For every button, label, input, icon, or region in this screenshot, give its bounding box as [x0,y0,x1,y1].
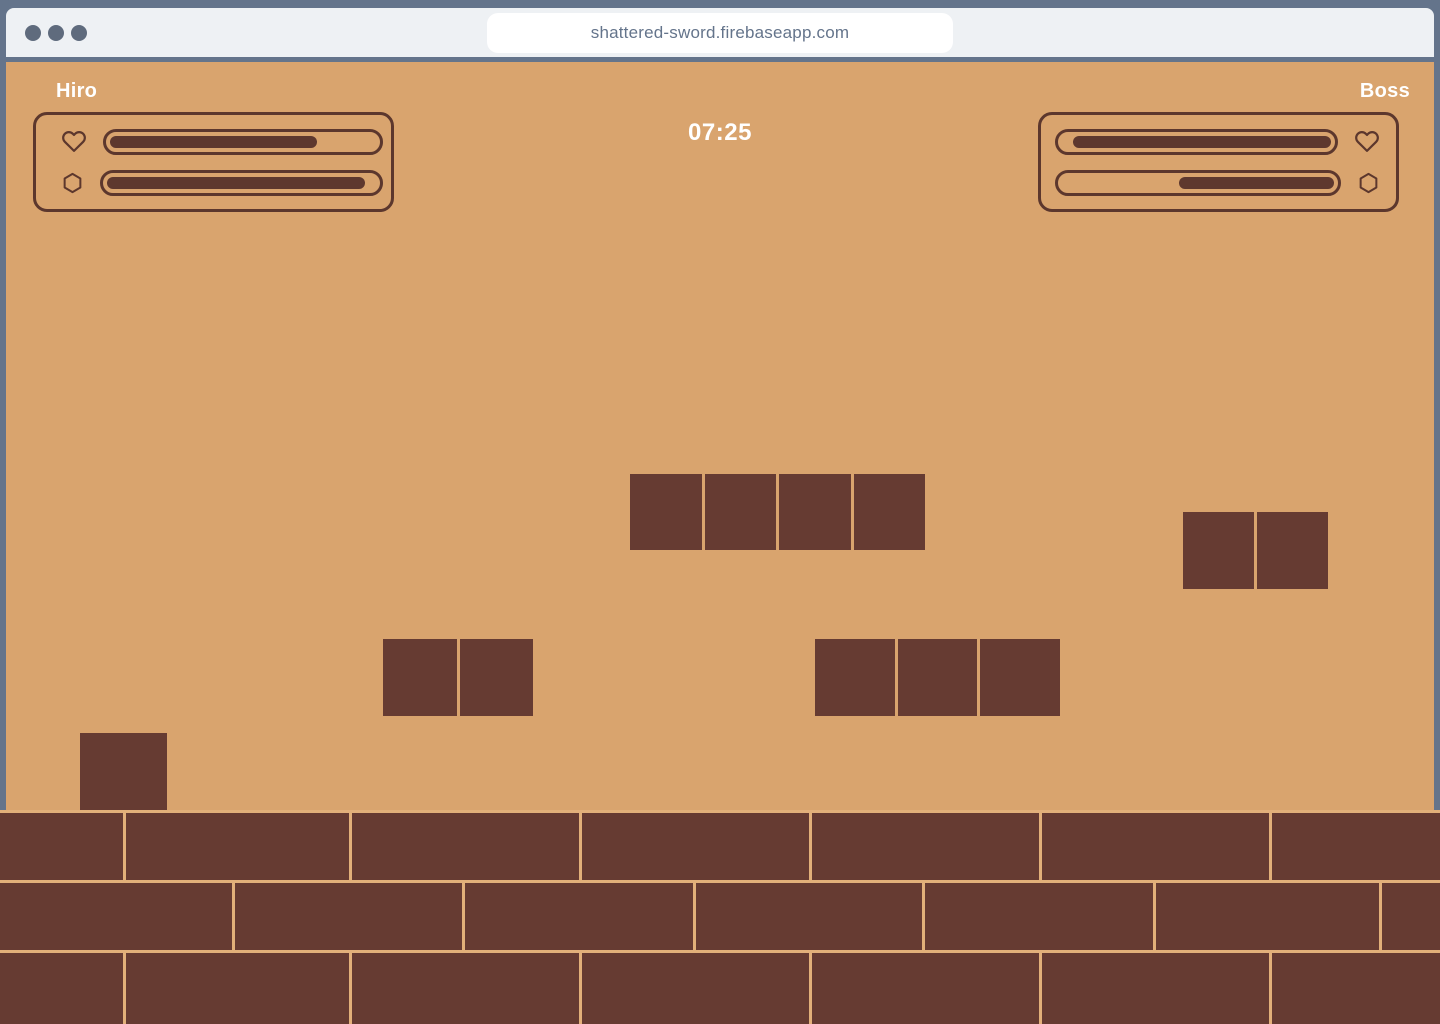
brick-gap [1153,883,1156,950]
platform [1183,512,1328,589]
floor [0,810,1440,1024]
brick-gap [809,813,812,880]
platform-tile [383,639,457,716]
platform-tile [630,474,702,550]
brick-gap [693,883,696,950]
window-close-button[interactable] [25,25,41,41]
brick-gap [809,953,812,1024]
platform-tile [980,639,1060,716]
url-text: shattered-sword.firebaseapp.com [591,23,850,43]
brick-gap [349,813,352,880]
player-name-boss: Boss [1360,81,1410,101]
platform-tile [705,474,777,550]
platform-tile [779,474,851,550]
hiro-health-fill [110,136,317,148]
platform [383,639,533,716]
brick-gap [1039,953,1042,1024]
boss-health-bar [1055,129,1338,155]
hiro-health-bar [103,129,383,155]
brick-row [0,883,1440,950]
platform-tile [80,733,167,810]
brick-gap [1269,953,1272,1024]
brick-gap [462,883,465,950]
brick-gap [349,953,352,1024]
brick-gap [1269,813,1272,880]
browser-titlebar: shattered-sword.firebaseapp.com [6,8,1434,57]
hiro-energy-row [61,170,383,196]
platform [80,733,167,810]
platform [815,639,1060,716]
platform-tile [1257,512,1328,589]
platform-tile [460,639,534,716]
url-bar[interactable]: shattered-sword.firebaseapp.com [487,13,953,53]
hexagon-icon [1357,171,1380,195]
traffic-lights [25,25,87,41]
boss-status-panel [1038,112,1399,212]
boss-energy-bar [1055,170,1341,196]
hexagon-icon [61,171,84,195]
boss-energy-fill [1179,177,1334,189]
boss-health-row [1055,129,1380,155]
brick-row [0,953,1440,1024]
platform-tile [898,639,978,716]
player-name-hiro: Hiro [56,81,97,101]
heart-icon [1354,129,1380,154]
brick-gap [579,813,582,880]
hiro-energy-bar [100,170,383,196]
brick-gap [232,883,235,950]
window-maximize-button[interactable] [71,25,87,41]
platform-tile [815,639,895,716]
hiro-health-row [61,129,383,155]
platform-tile [854,474,926,550]
brick-gap [1039,813,1042,880]
brick-gap [123,813,126,880]
brick-gap [922,883,925,950]
window-minimize-button[interactable] [48,25,64,41]
heart-icon [61,129,87,154]
hiro-energy-fill [107,177,365,189]
hiro-status-panel [33,112,394,212]
platform [630,474,925,550]
boss-health-fill [1073,136,1331,148]
brick-row [0,813,1440,880]
brick-gap [123,953,126,1024]
platform-tile [1183,512,1254,589]
boss-energy-row [1055,170,1380,196]
match-timer: 07:25 [688,121,752,145]
brick-gap [579,953,582,1024]
brick-gap [1379,883,1382,950]
browser-window: shattered-sword.firebaseapp.com 07:25 Hi… [0,0,1440,1024]
